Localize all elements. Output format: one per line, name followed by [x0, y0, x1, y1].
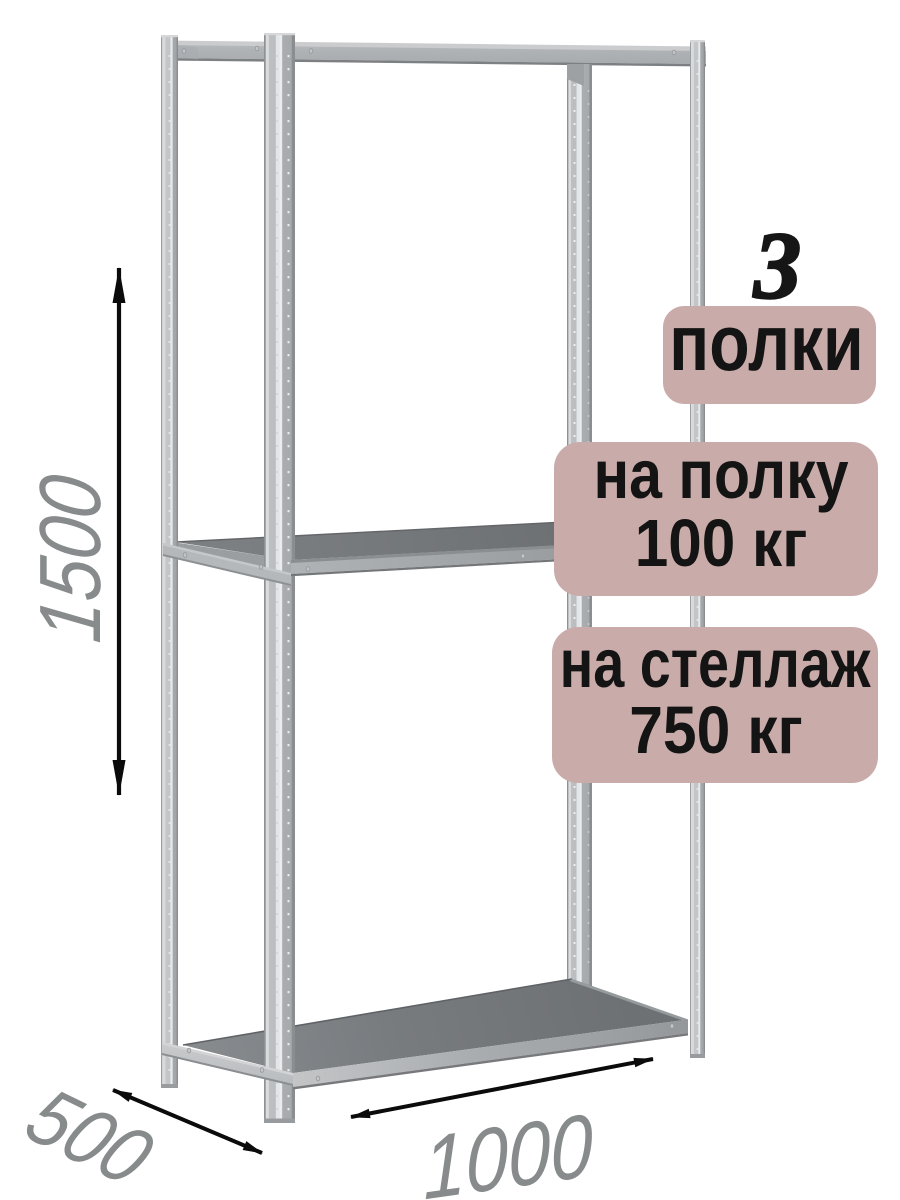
- svg-text:750 кг: 750 кг: [629, 692, 803, 767]
- svg-text:1500: 1500: [23, 470, 120, 646]
- svg-text:на стеллаж: на стеллаж: [560, 625, 871, 702]
- svg-text:100 кг: 100 кг: [635, 505, 808, 581]
- svg-text:на полку: на полку: [593, 436, 848, 513]
- svg-text:полки: полки: [669, 300, 863, 388]
